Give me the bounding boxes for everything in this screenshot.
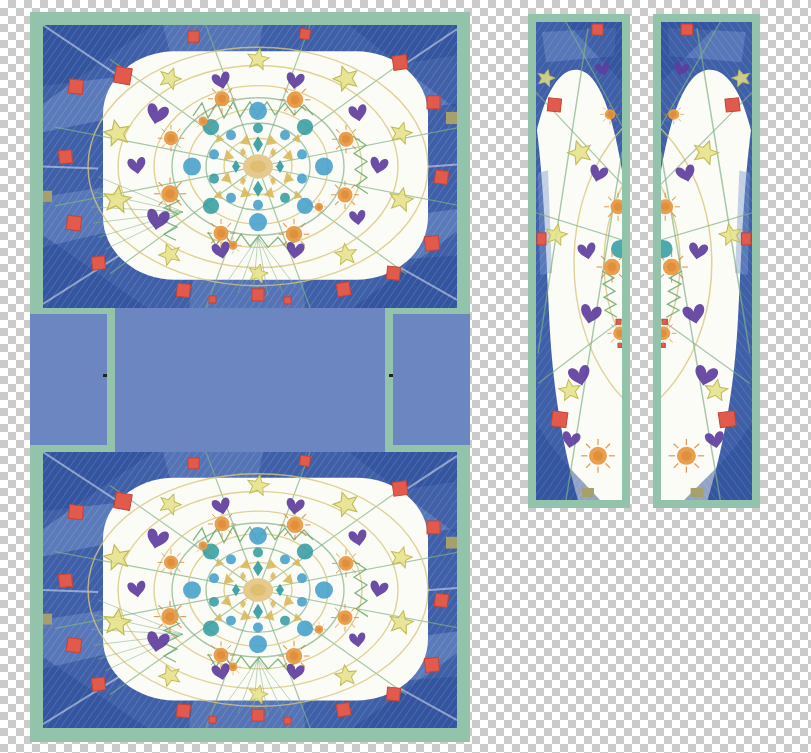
- pattern-piece-side-strip-left: [528, 14, 630, 508]
- left-tab-rect: [30, 314, 107, 445]
- crop-mark-right: [389, 374, 393, 377]
- top-panel-artwork: [43, 25, 457, 308]
- crop-mark-left: [103, 374, 107, 377]
- bottom-panel-artwork: [43, 452, 457, 728]
- center-gusset-rect: [115, 308, 385, 452]
- transparency-checkerboard: [0, 0, 811, 753]
- side-strip-left-artwork: [536, 22, 622, 500]
- pattern-piece-top-panel: [30, 12, 470, 308]
- pattern-piece-side-strip-right: [653, 14, 760, 508]
- side-strip-right-artwork: [661, 22, 752, 500]
- connector-band: [30, 308, 470, 452]
- pattern-piece-bottom-panel: [30, 452, 470, 742]
- right-tab-rect: [393, 314, 470, 445]
